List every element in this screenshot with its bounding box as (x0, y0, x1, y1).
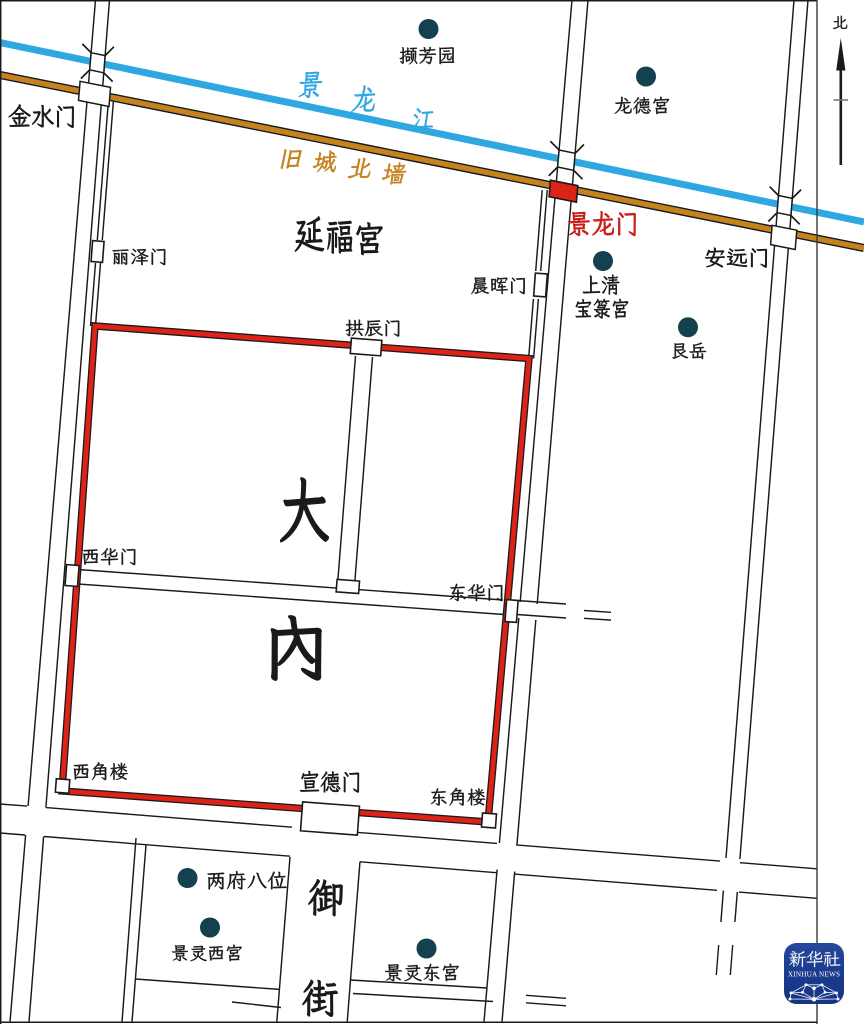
svg-text:XINHUA NEWS: XINHUA NEWS (788, 970, 840, 978)
